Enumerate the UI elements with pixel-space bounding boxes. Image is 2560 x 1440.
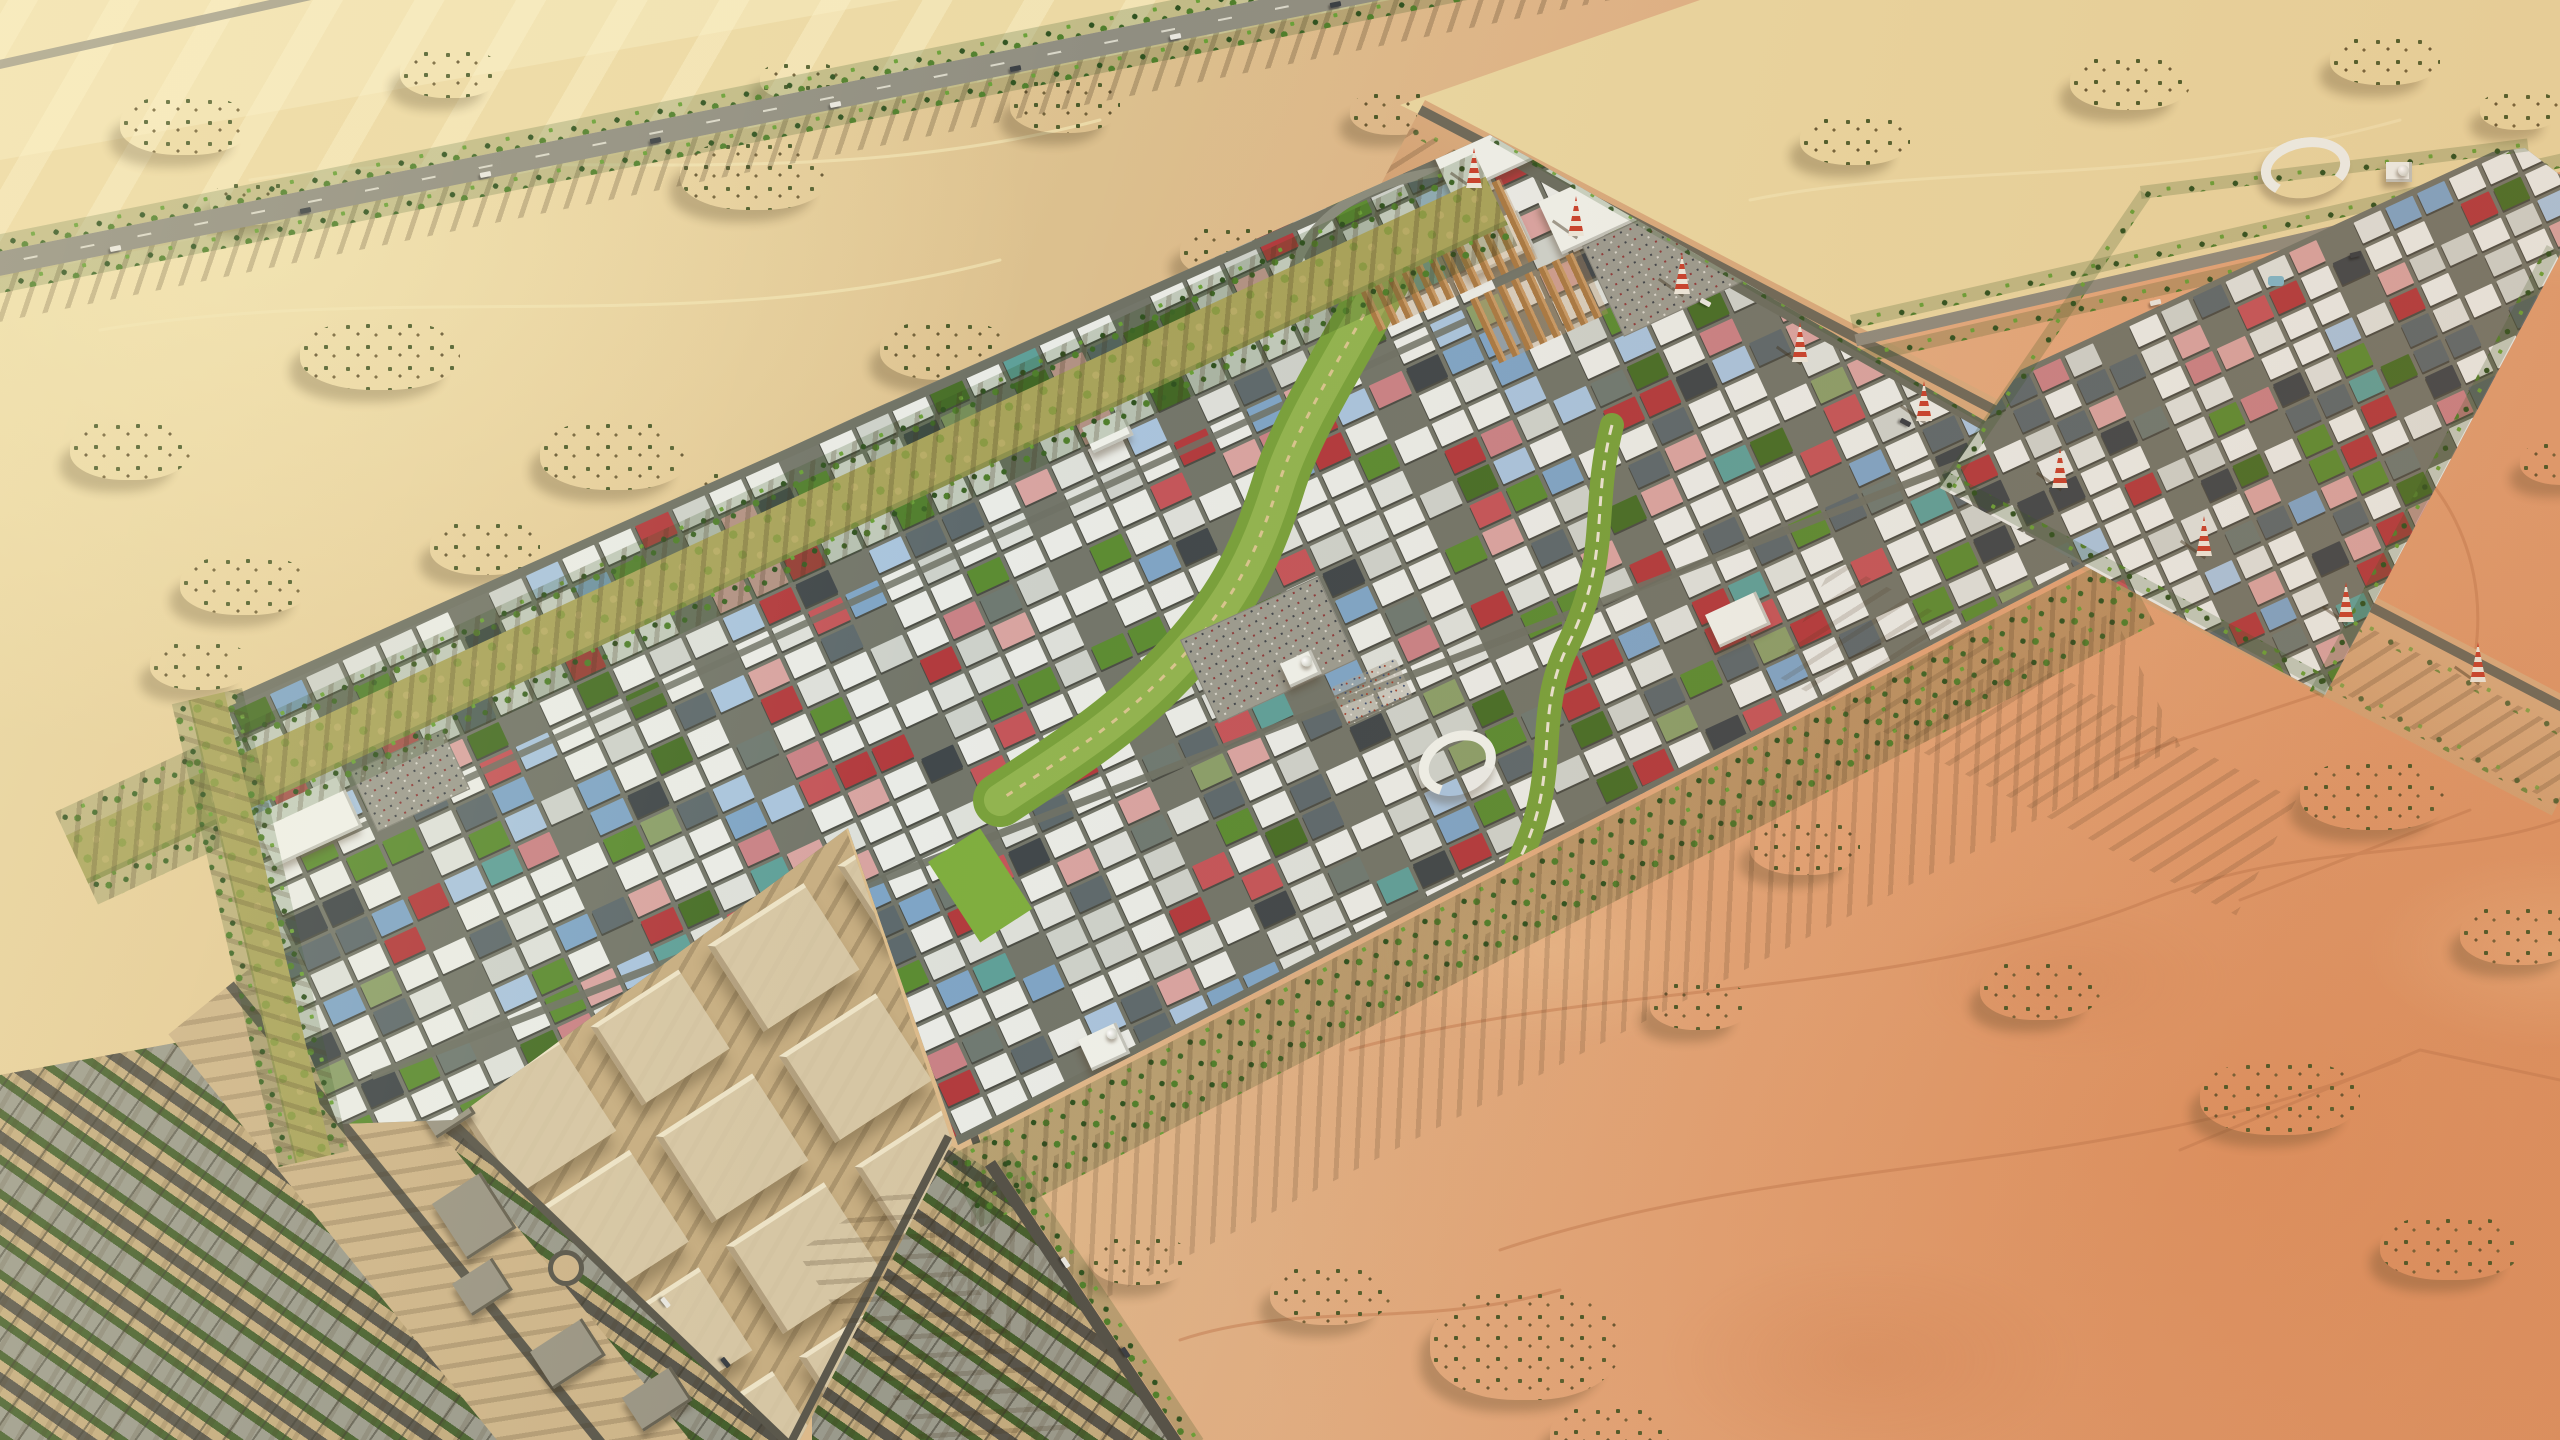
- car: [480, 171, 492, 178]
- car: [2350, 251, 2362, 258]
- vehicle-layer: [0, 0, 2560, 1440]
- car: [1899, 418, 1911, 428]
- car: [1120, 1347, 1130, 1359]
- car: [1060, 1257, 1070, 1269]
- car: [660, 1297, 671, 1309]
- car: [830, 101, 842, 108]
- car: [110, 245, 122, 252]
- car: [720, 1357, 731, 1369]
- car: [1699, 298, 1711, 308]
- car: [1170, 33, 1182, 40]
- aerial-render-scene: [0, 0, 2560, 1440]
- car: [2150, 299, 2162, 306]
- car: [1330, 1, 1342, 8]
- car: [1010, 65, 1022, 72]
- car: [650, 137, 662, 144]
- car: [300, 207, 312, 214]
